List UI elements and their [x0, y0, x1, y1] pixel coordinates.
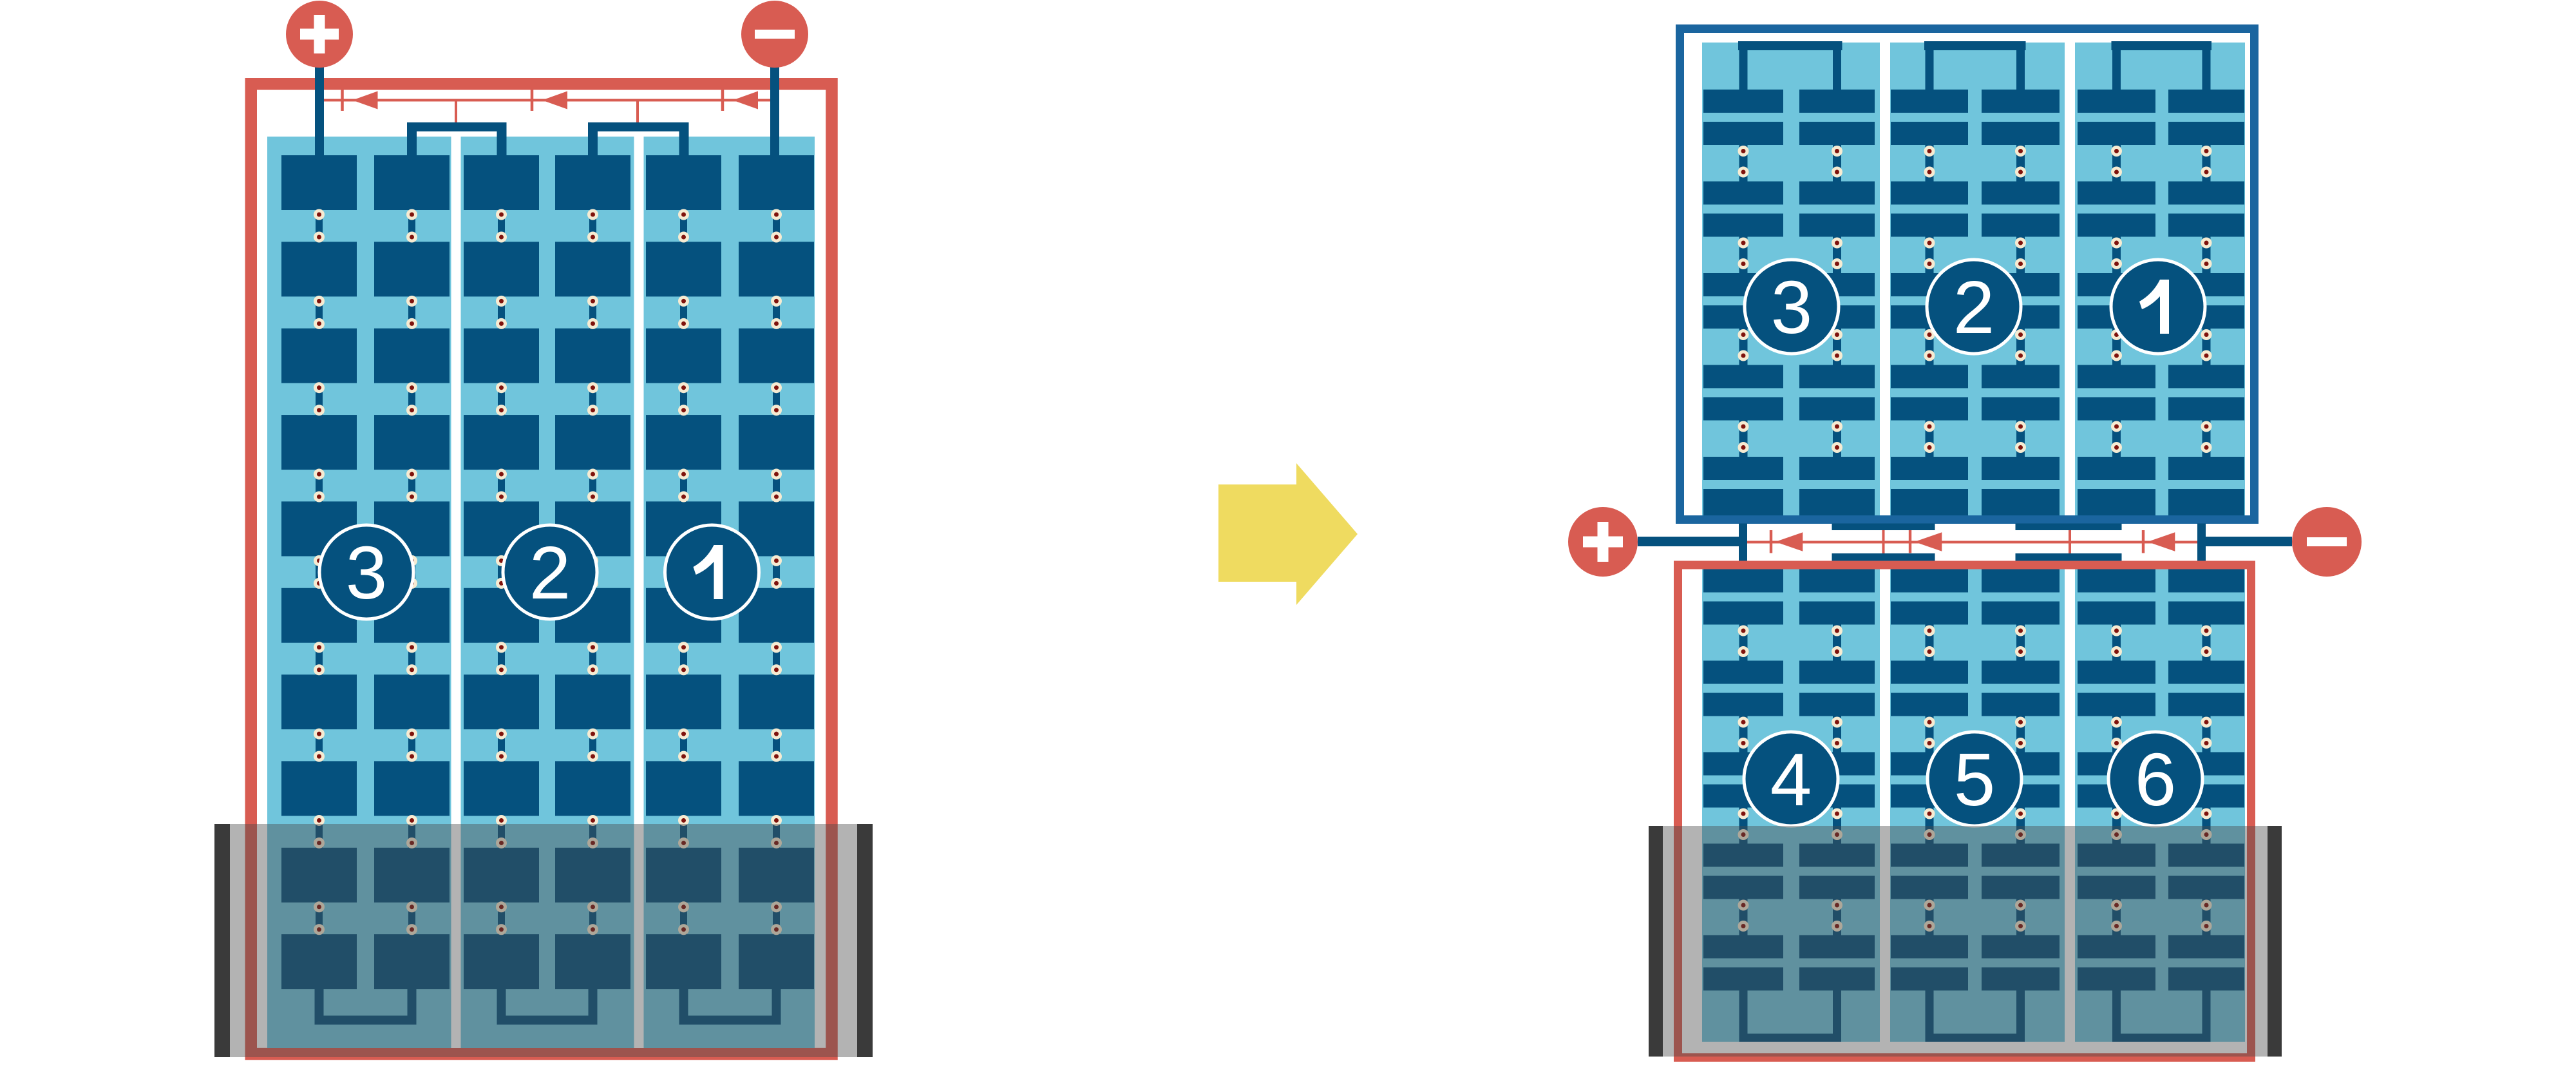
- svg-text:2: 2: [529, 531, 571, 615]
- svg-text:6: 6: [2135, 738, 2177, 821]
- svg-text:5: 5: [1954, 738, 1996, 821]
- svg-text:2: 2: [1953, 265, 1995, 349]
- svg-text:4: 4: [1770, 738, 1812, 821]
- svg-text:3: 3: [346, 531, 388, 615]
- svg-text:3: 3: [1771, 265, 1813, 349]
